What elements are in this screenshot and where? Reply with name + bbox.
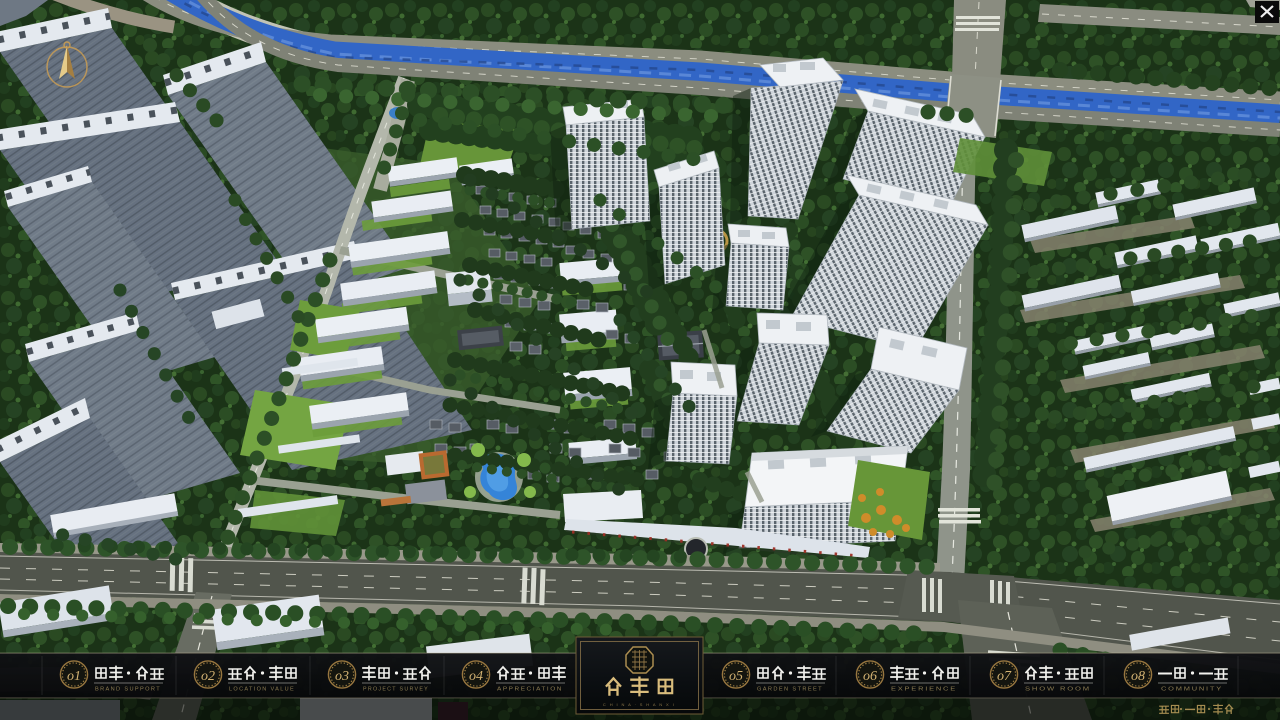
svg-text:o8: o8: [1131, 669, 1145, 684]
svg-text:GARDEN STREET: GARDEN STREET: [757, 687, 823, 693]
svg-text:SHOW ROOM: SHOW ROOM: [1025, 687, 1091, 693]
svg-text:o4: o4: [469, 669, 483, 684]
svg-text:APPRECIATION: APPRECIATION: [497, 687, 563, 693]
svg-text:C H I N A · S H A N X I: C H I N A · S H A N X I: [603, 702, 675, 707]
svg-text:BRAND SUPPORT: BRAND SUPPORT: [95, 687, 161, 693]
svg-text:o6: o6: [863, 669, 877, 684]
svg-text:o7: o7: [997, 669, 1012, 684]
svg-text:o3: o3: [335, 669, 349, 684]
svg-text:o1: o1: [67, 669, 81, 684]
svg-text:COMMUNITY: COMMUNITY: [1161, 687, 1223, 693]
svg-text:o5: o5: [729, 669, 743, 684]
svg-text:EXPERIENCE: EXPERIENCE: [891, 687, 957, 693]
svg-text:PROJECT SURVEY: PROJECT SURVEY: [363, 687, 429, 693]
svg-text:LOCATION VALUE: LOCATION VALUE: [229, 687, 295, 693]
svg-text:o2: o2: [201, 669, 215, 684]
